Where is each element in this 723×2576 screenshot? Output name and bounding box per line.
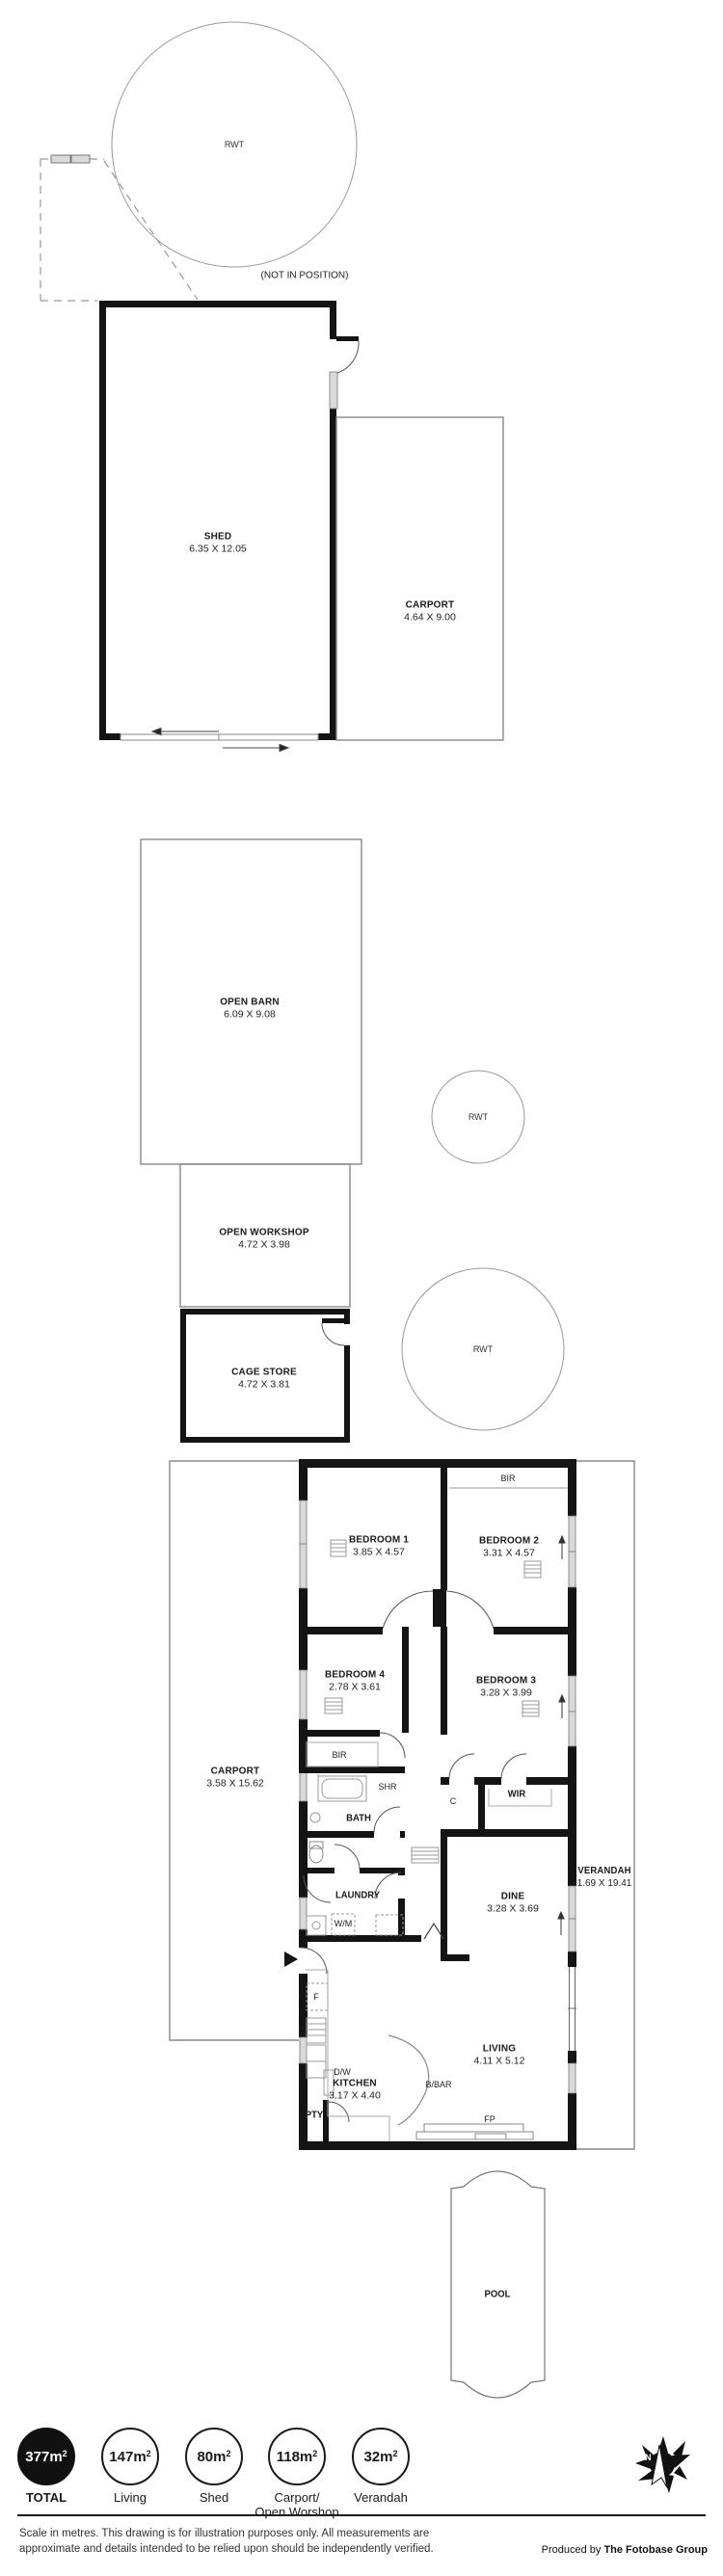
legend-item-total: 377m2 TOTAL [3,2428,90,2506]
dw-label: D/W [334,2067,351,2077]
wm-label: W/M [335,1919,353,1928]
wir-label: WIR [508,1789,525,1800]
entry-arrow-icon [284,1952,298,1967]
room-label-bedroom3: BEDROOM 3 3.28 X 3.99 [474,1674,537,1698]
shed-carport-outline [336,417,503,740]
rwt-mid-label: RWT [469,1112,488,1122]
footer-divider [17,2514,706,2516]
floorplan-graphics: N [0,0,723,2576]
room-label-cage-store: CAGE STORE 4.72 X 3.81 [229,1366,298,1390]
room-label-house-carport: CARPORT 3.58 X 15.62 [206,1765,264,1789]
floorplan-page: N RWT RWT RWT (NOT IN POSITION) SHED 6.3… [0,0,723,2576]
room-label-verandah: VERANDAH 1.69 X 19.41 [576,1866,632,1889]
fridge-label: F [313,1992,319,2002]
breakfast-bar-curve [388,2035,429,2125]
compass-icon: N [635,2436,690,2493]
legend-circle-shed: 80m2 [185,2428,243,2485]
room-label-open-barn: OPEN BARN 6.09 X 9.08 [219,996,281,1020]
disclaimer-text: Scale in metres. This drawing is for ill… [19,2527,434,2557]
fp-label: FP [484,2114,495,2124]
gate-icon [51,155,90,163]
room-label-bedroom2: BEDROOM 2 3.31 X 4.57 [477,1534,540,1558]
room-label-kitchen: KITCHEN 3.17 X 4.40 [329,2077,381,2101]
direction-arrows [558,1536,565,1935]
legend-circle-total: 377m2 [17,2428,75,2485]
room-label-living: LIVING 4.11 X 5.12 [474,2042,525,2066]
legend-item-verandah: 32m2 Verandah [337,2428,424,2506]
legend-item-shed: 80m2 Shed [171,2428,257,2506]
laundry-fixtures [307,1914,403,1935]
legend-circle-carport-workshop: 118m2 [268,2428,326,2485]
legend-circle-verandah: 32m2 [352,2428,410,2485]
living-sliding-door [568,1967,576,2051]
verandah-outline [576,1461,634,2149]
room-label-dine: DINE 3.28 X 3.69 [487,1890,539,1914]
bir-bed2-label: BIR [500,1474,515,1483]
room-label-bedroom1: BEDROOM 1 3.85 X 4.57 [347,1533,410,1557]
laundry-label: LAUNDRY [335,1890,380,1901]
legend-label-verandah: Verandah [337,2491,424,2506]
rwt-top-label: RWT [225,140,244,149]
room-label-bedroom4: BEDROOM 4 2.78 X 3.61 [323,1668,386,1692]
shed-door-arc [337,341,359,373]
not-in-position-label: (NOT IN POSITION) [261,270,349,281]
legend-item-living: 147m2 Living [87,2428,174,2506]
house-carport-outline [170,1461,299,2040]
legend-circle-living: 147m2 [101,2428,159,2485]
pty-label: PTY [306,2110,323,2121]
legend-label-total: TOTAL [3,2491,90,2506]
shed-walls [99,301,359,740]
cage-store-door-arc [322,1323,344,1345]
shed-window [330,372,337,409]
produced-by-text: Produced by The Fotobase Group [542,2544,708,2556]
room-label-open-workshop: OPEN WORKSHOP 4.72 X 3.98 [217,1226,311,1250]
shed-sliding-door [120,734,318,740]
toilet-icon [309,1842,323,1863]
shr-label: SHR [378,1782,396,1792]
legend-label-shed: Shed [171,2491,257,2506]
pool-label: POOL [485,2289,511,2300]
bbar-label: B/BAR [425,2080,451,2089]
compass-north-label: N [645,2453,652,2462]
pool-outline [451,2171,545,2398]
bath-label: BATH [346,1813,371,1824]
room-label-shed: SHED 6.35 X 12.05 [189,530,247,554]
dashed-boundary [40,159,198,301]
legend-item-carport-workshop: 118m2 Carport/ Open Worshop [254,2428,340,2520]
house-walls [299,1459,576,2150]
room-label-shed-carport: CARPORT 4.64 X 9.00 [404,598,456,623]
cupboard-label: C [450,1796,457,1806]
legend-label-living: Living [87,2491,174,2506]
rwt-lower-label: RWT [473,1344,493,1354]
fireplace-icon [416,2124,533,2139]
bir-bed4-label: BIR [332,1750,346,1760]
